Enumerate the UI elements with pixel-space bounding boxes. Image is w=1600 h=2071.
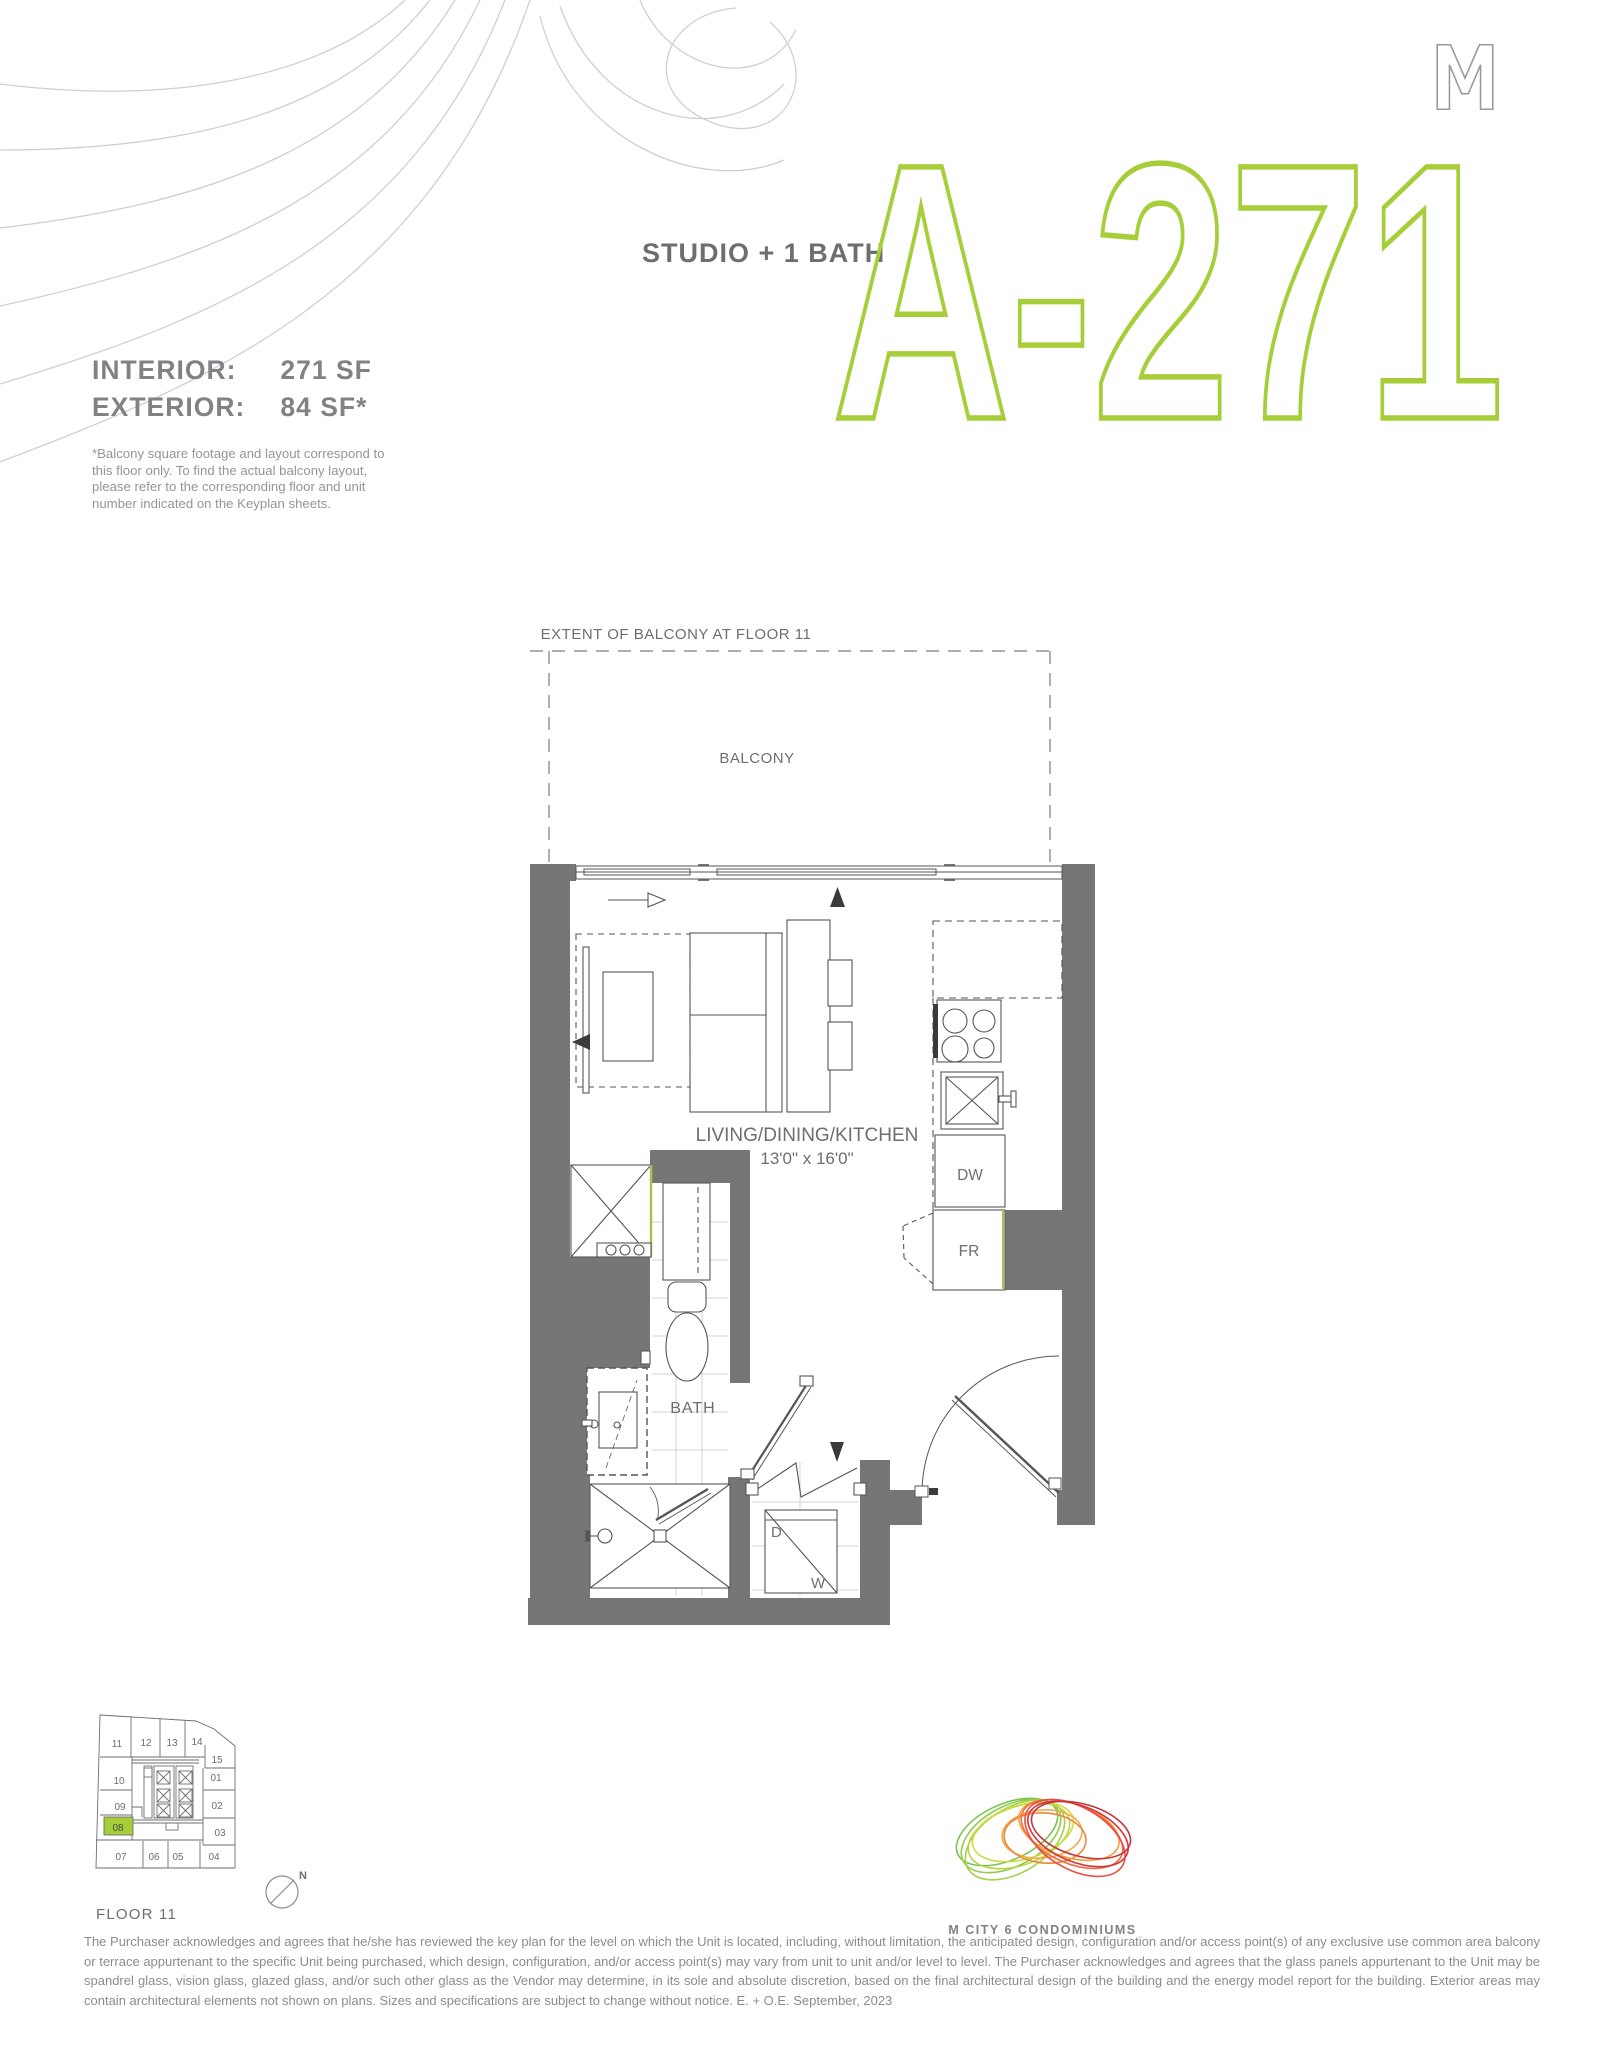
table: [603, 972, 653, 1061]
dryer-label: D: [771, 1524, 782, 1541]
floor-label: FLOOR 11: [96, 1906, 177, 1923]
interior-value: 271 SF: [280, 355, 371, 385]
exterior-value: 84 SF*: [280, 392, 367, 422]
m-logo-icon: [1435, 42, 1495, 112]
window-band: [576, 866, 1062, 879]
balcony-footnote: *Balcony square footage and layout corre…: [92, 446, 390, 512]
svg-text:14: 14: [191, 1737, 203, 1748]
exterior-area-row: EXTERIOR: 84 SF*: [92, 389, 372, 426]
tv-panel: [583, 947, 589, 1093]
legal-disclaimer: The Purchaser acknowledges and agrees th…: [84, 1932, 1540, 2010]
toilet-bowl: [666, 1313, 708, 1381]
living-furniture: [572, 887, 852, 1112]
svg-text:04: 04: [208, 1852, 220, 1863]
interior-area-row: INTERIOR: 271 SF: [92, 352, 372, 389]
svg-text:11: 11: [112, 1739, 123, 1750]
bifold-doors: [753, 1463, 857, 1497]
floorplan-drawing: EXTENT OF BALCONY AT FLOOR 11 BALCONY: [400, 620, 1100, 1665]
up-arrow-icon: [830, 887, 845, 907]
svg-text:10: 10: [113, 1776, 125, 1787]
dishwasher-label: DW: [957, 1167, 983, 1184]
toilet-tank: [663, 1183, 710, 1280]
highlighted-unit-label: 08: [112, 1823, 124, 1834]
fridge-label: FR: [959, 1243, 980, 1260]
north-label: N: [299, 1870, 307, 1882]
svg-text:03: 03: [214, 1828, 226, 1839]
right-arrow-icon: [648, 893, 665, 907]
room-dimensions: 13'0" x 16'0": [760, 1149, 853, 1168]
sofa: [690, 933, 782, 1112]
svg-text:12: 12: [140, 1738, 152, 1749]
stove: [937, 1000, 1001, 1062]
balcony-extent-label: EXTENT OF BALCONY AT FLOOR 11: [541, 626, 812, 643]
left-arrow-icon: [572, 1034, 590, 1050]
mcity-logo-icon: [935, 1750, 1150, 1915]
interior-label: INTERIOR:: [92, 352, 272, 389]
balcony-label: BALCONY: [719, 750, 794, 767]
svg-text:13: 13: [166, 1738, 178, 1749]
svg-text:02: 02: [211, 1801, 223, 1812]
svg-text:09: 09: [114, 1802, 126, 1813]
keyplan-unit-labels: 11 12 13 14 15 10 01 09 02 08 03 07 06 0…: [112, 1737, 226, 1863]
bath-door: [748, 1384, 807, 1477]
north-compass-icon: N: [266, 1870, 307, 1908]
exterior-label: EXTERIOR:: [92, 389, 272, 426]
svg-text:05: 05: [172, 1852, 184, 1863]
svg-text:15: 15: [211, 1755, 223, 1766]
floorplan-sheet: STUDIO + 1 BATH A-271 INTERIOR: 271 SF E…: [0, 0, 1600, 2071]
bath-label: BATH: [670, 1400, 715, 1417]
svg-text:01: 01: [210, 1773, 222, 1784]
room-label: LIVING/DINING/KITCHEN: [696, 1125, 919, 1146]
shower: [586, 1484, 730, 1588]
washer-label: W: [811, 1575, 826, 1592]
entry-door: [915, 1356, 1061, 1497]
area-summary: INTERIOR: 271 SF EXTERIOR: 84 SF*: [92, 352, 372, 426]
svg-text:07: 07: [115, 1852, 127, 1863]
unit-code-text: A-271: [832, 118, 1504, 448]
down-arrow-icon: [830, 1442, 844, 1462]
unit-code: A-271: [818, 118, 1518, 448]
svg-text:06: 06: [148, 1852, 160, 1863]
laundry: [746, 1442, 866, 1593]
closet: [571, 1165, 651, 1257]
keyplan: 11 12 13 14 15 10 01 09 02 08 03 07 06 0…: [60, 1680, 320, 1940]
